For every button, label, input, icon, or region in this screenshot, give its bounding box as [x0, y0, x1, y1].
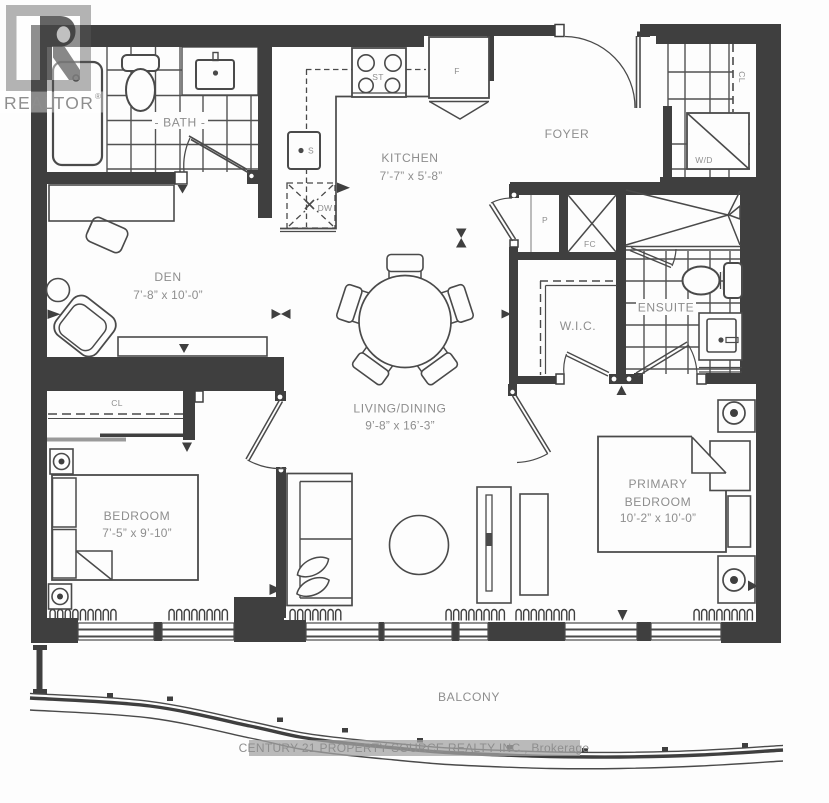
svg-text:BEDROOM: BEDROOM [625, 495, 692, 509]
svg-text:BEDROOM: BEDROOM [104, 509, 171, 523]
svg-text:9’-8” x 16’-3”: 9’-8” x 16’-3” [365, 419, 435, 433]
svg-text:®: ® [95, 92, 101, 101]
svg-text:KITCHEN: KITCHEN [381, 151, 438, 165]
svg-text:REALTOR: REALTOR [4, 93, 94, 113]
svg-text:FC: FC [584, 239, 596, 249]
svg-text:DW: DW [318, 203, 333, 213]
svg-text:10’-2” x 10’-0”: 10’-2” x 10’-0” [620, 511, 696, 525]
svg-text:S: S [308, 146, 314, 156]
svg-text:W/D: W/D [695, 155, 712, 165]
svg-text:CL: CL [737, 71, 747, 82]
svg-text:ST: ST [372, 72, 383, 82]
svg-text:CENTURY 21 PROPERTY SOURCE REA: CENTURY 21 PROPERTY SOURCE REALTY INC., … [239, 741, 590, 755]
svg-text:BALCONY: BALCONY [438, 690, 500, 704]
svg-text:DEN: DEN [154, 270, 181, 284]
svg-text:FOYER: FOYER [545, 127, 590, 141]
svg-text:F: F [454, 66, 460, 76]
svg-text:P: P [542, 215, 548, 225]
svg-text:LIVING/DINING: LIVING/DINING [353, 402, 446, 416]
svg-text:CL: CL [111, 398, 122, 408]
svg-text:W.I.C.: W.I.C. [560, 319, 597, 333]
svg-text:7’-8” x 10’-0”: 7’-8” x 10’-0” [133, 288, 203, 302]
svg-text:ENSUITE: ENSUITE [638, 301, 695, 315]
svg-text:PRIMARY: PRIMARY [628, 477, 687, 491]
svg-text:7’-5” x 9’-10”: 7’-5” x 9’-10” [102, 526, 172, 540]
svg-text:7’-7” x 5’-8”: 7’-7” x 5’-8” [380, 169, 443, 183]
svg-text:- BATH -: - BATH - [155, 116, 206, 130]
